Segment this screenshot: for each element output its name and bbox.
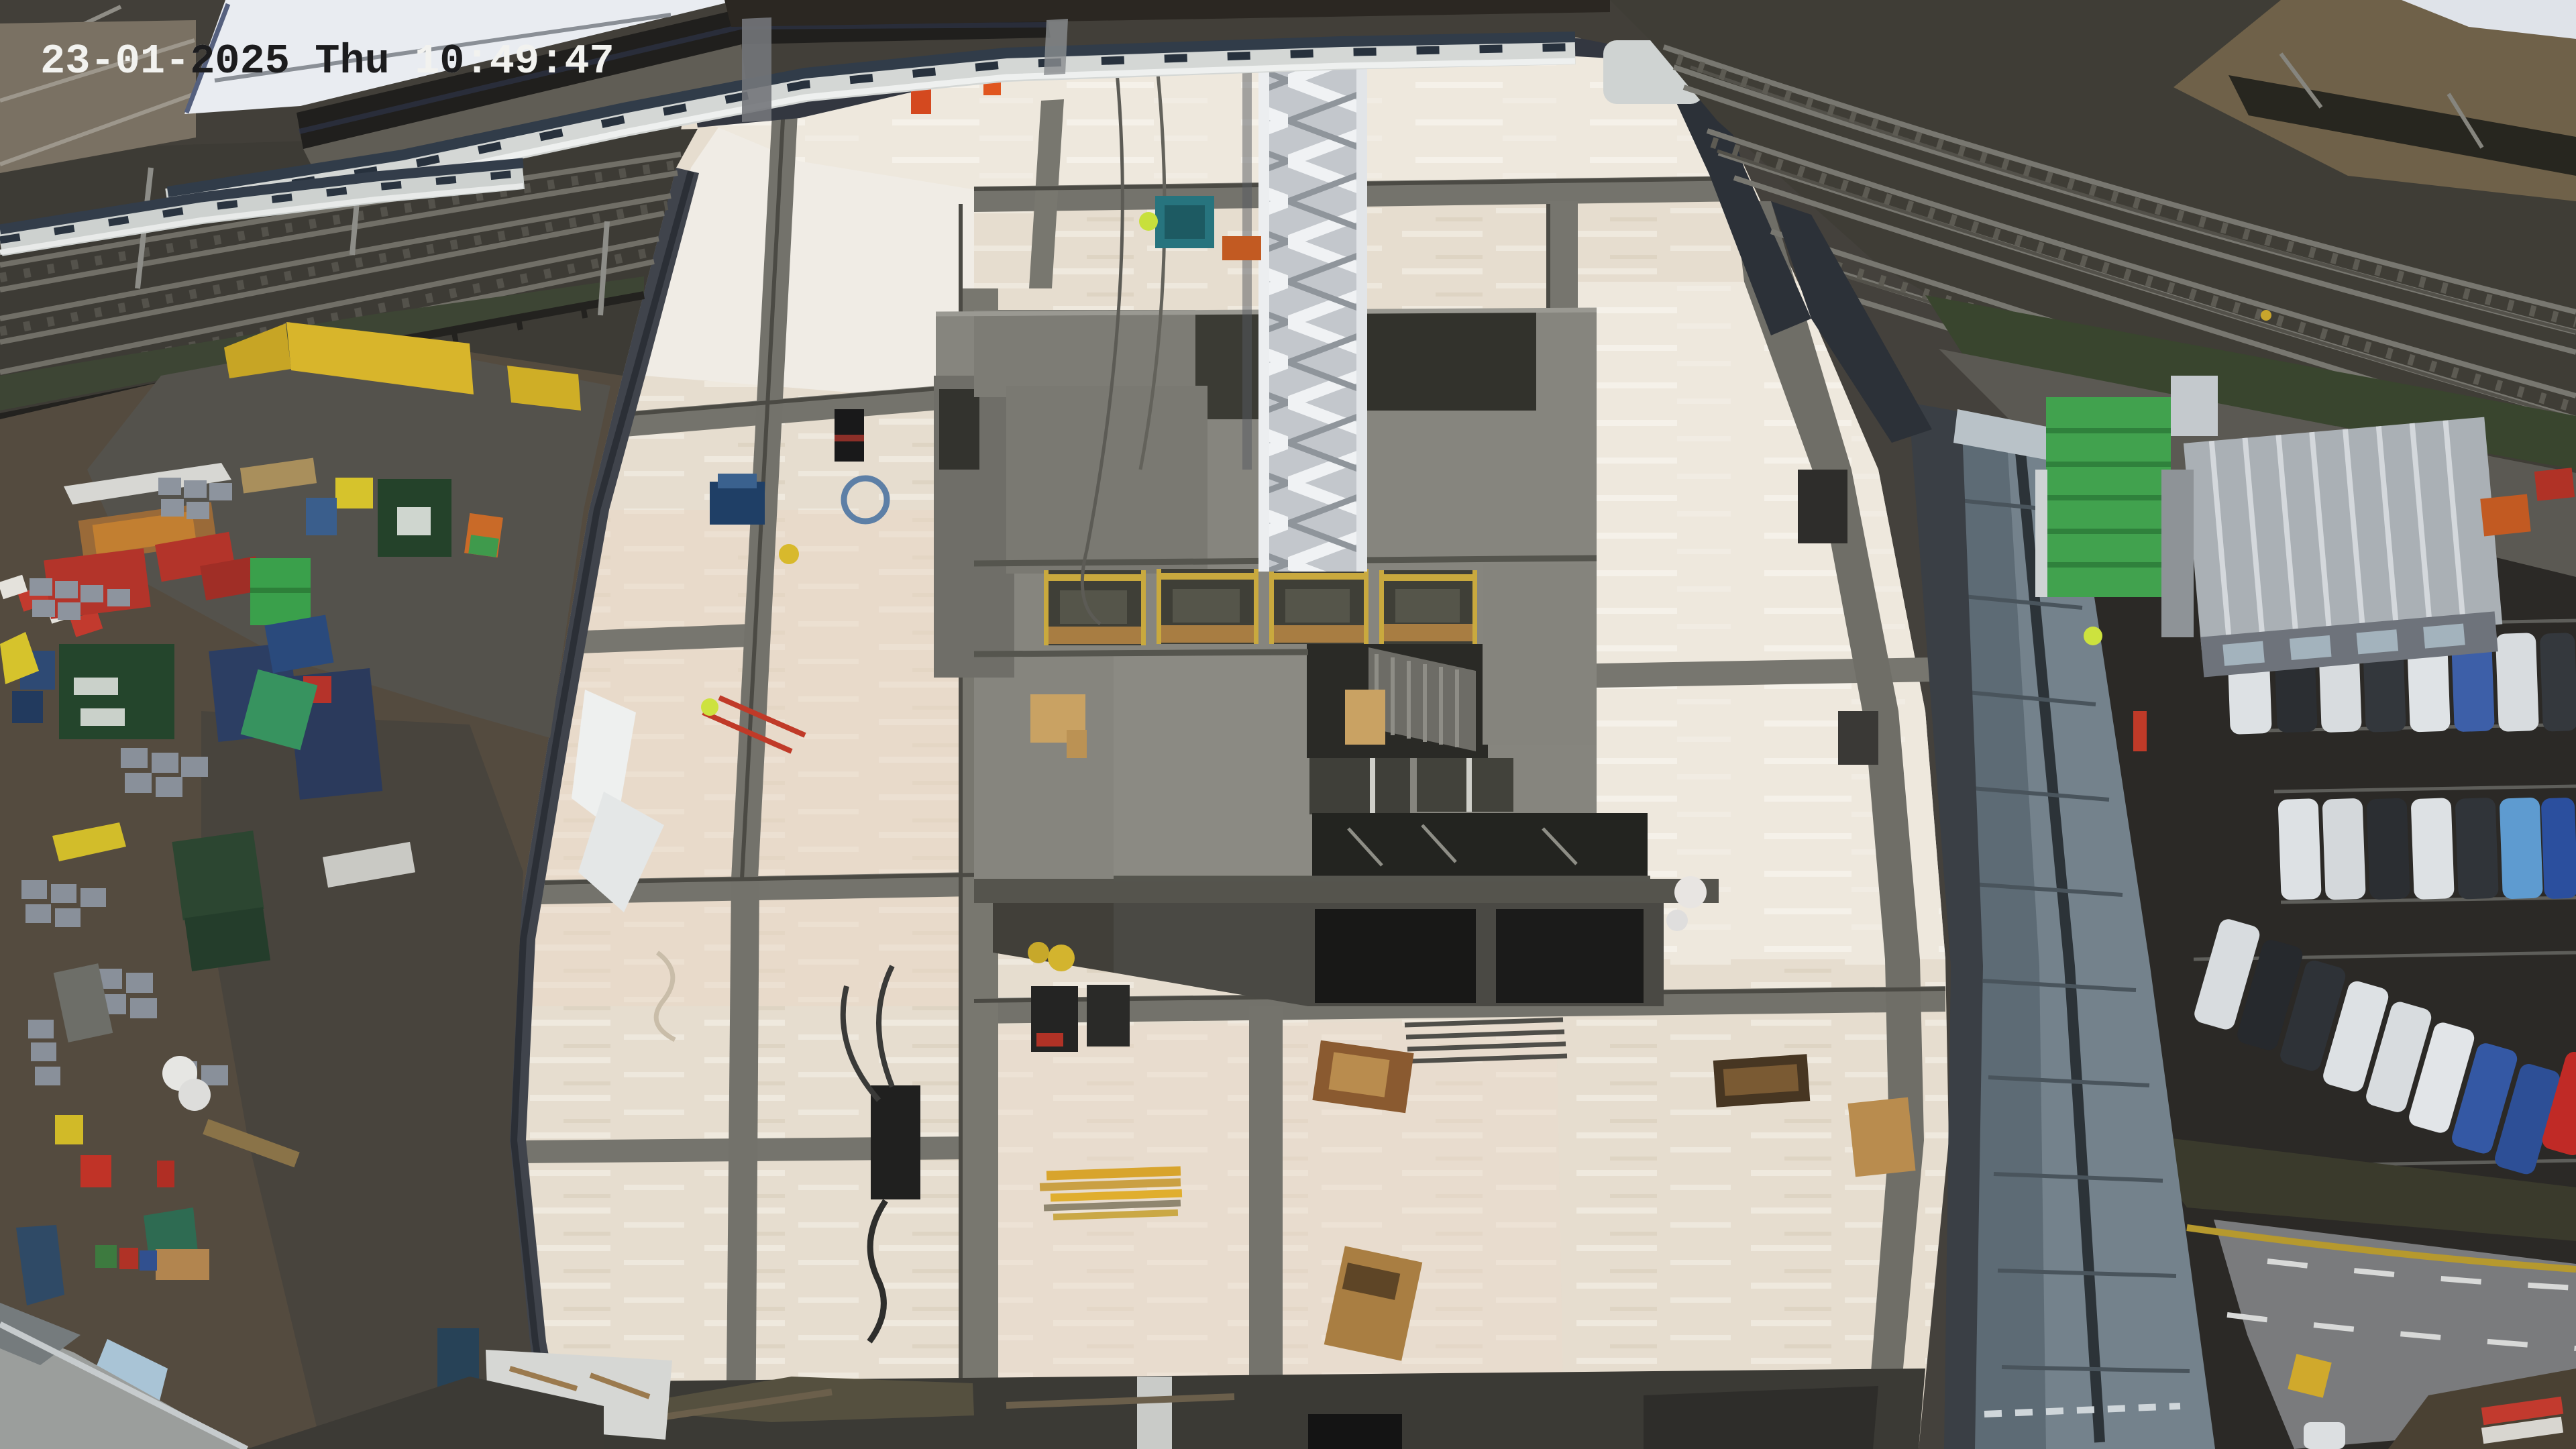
svg-text:0: 0 xyxy=(439,38,464,85)
svg-text:2025 Thu: 2025 Thu xyxy=(190,38,390,85)
